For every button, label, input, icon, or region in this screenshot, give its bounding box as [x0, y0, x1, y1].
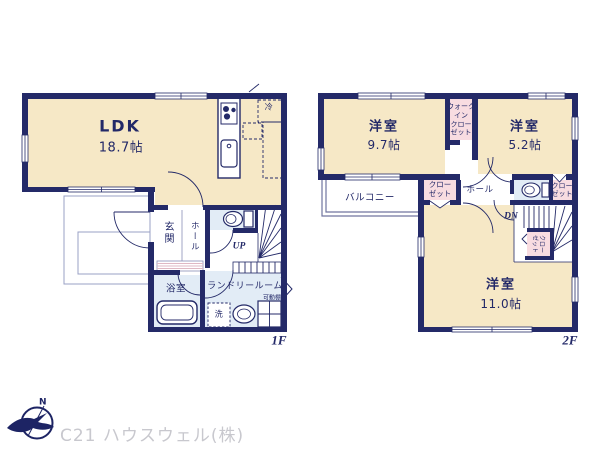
- floorplan-canvas: LDK 18.7帖 玄関 ホール UP 浴室 ランドリールーム 洗 可動棚 冷 …: [0, 0, 600, 450]
- kitchen-counter: [218, 98, 240, 178]
- burner-icon: [224, 113, 230, 119]
- bird-icon: [7, 413, 54, 432]
- shelf-label: 可動棚: [263, 294, 281, 301]
- room-label-ldk: LDK: [99, 118, 141, 137]
- movable-shelf: [258, 301, 281, 327]
- room-label-laundry: ランドリールーム: [207, 282, 283, 293]
- room-label-bath: 浴室: [166, 283, 186, 294]
- company-name: C21 ハウスウェル(株): [60, 421, 244, 446]
- wash-basin: [233, 305, 255, 323]
- toilet-icon-1f: [224, 211, 254, 227]
- room-label-110: 洋室: [486, 277, 516, 292]
- closet-52-label: クロー ゼット: [552, 182, 573, 199]
- stairs-down-label: DN: [504, 211, 518, 222]
- room-label-genkan: 玄関: [162, 221, 172, 245]
- room-size-52: 5.2帖: [508, 138, 541, 152]
- compass: [7, 406, 54, 439]
- toilet-icon-2f: [522, 183, 549, 197]
- stairs-up-label: UP: [233, 241, 246, 252]
- washer-label: 洗: [215, 309, 224, 318]
- compass-n-label: N: [39, 398, 47, 409]
- floor2-label: 2F: [562, 332, 577, 347]
- hall-2f-label: ホール: [466, 185, 493, 195]
- room-label-52: 洋室: [510, 119, 540, 134]
- front-door-arc: [114, 212, 150, 248]
- burner-icon: [223, 106, 229, 112]
- room-97: [324, 99, 445, 174]
- vent-mark: [249, 84, 259, 92]
- wic-label: ウォーク イン クロー ゼット: [447, 103, 475, 138]
- room-label-97: 洋室: [369, 119, 399, 134]
- entrance-porch: [64, 196, 150, 284]
- floorplan-drawing: [0, 0, 600, 450]
- balcony-label: バルコニー: [345, 192, 395, 203]
- room-size-ldk: 18.7帖: [99, 140, 143, 155]
- room-size-110: 11.0帖: [480, 297, 521, 311]
- stove: [221, 103, 237, 124]
- closet-hall-label: クロー ゼット: [429, 181, 452, 199]
- room-label-hall-1f: ホール: [190, 221, 199, 253]
- fridge-label: 冷: [265, 102, 274, 111]
- burner-icon: [231, 108, 235, 112]
- bathtub: [157, 301, 197, 324]
- genkan-threshold: [157, 261, 203, 271]
- room-size-97: 9.7帖: [367, 138, 400, 152]
- closet-stairs-label: クロー ゼット: [531, 235, 545, 253]
- floor1-label: 1F: [271, 332, 286, 347]
- floor1-plan: [22, 84, 292, 332]
